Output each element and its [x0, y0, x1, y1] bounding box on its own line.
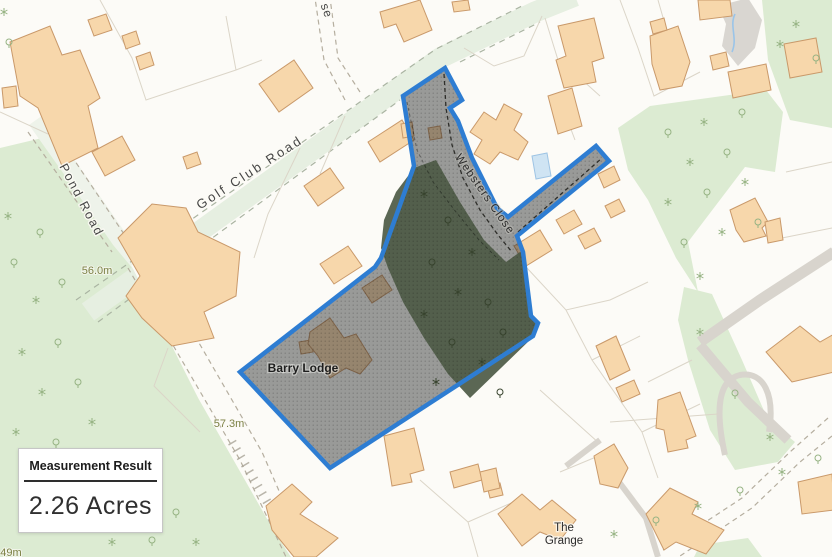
building: [784, 38, 822, 78]
place-label-the-grange: Grange: [545, 535, 583, 547]
place-label-barry-lodge: Barry Lodge: [268, 361, 339, 375]
spot-height-label: 57.3m: [214, 418, 245, 430]
map-measurement-screen: Golf Club Road Pond Road Websters Close …: [0, 0, 832, 557]
measurement-result-title: Measurement Result: [19, 449, 162, 473]
pond: [532, 153, 551, 179]
panel-divider: [24, 480, 157, 482]
measurement-result-panel: Measurement Result 2.26 Acres: [18, 448, 163, 533]
spot-height-label: 56.0m: [82, 265, 113, 277]
building: [765, 218, 783, 243]
building: [698, 0, 732, 20]
building: [452, 0, 470, 12]
place-label-the-grange: The: [554, 522, 574, 534]
building: [2, 86, 18, 108]
measurement-result-value: 2.26 Acres: [19, 492, 162, 521]
spot-height-label: 49m: [0, 547, 21, 557]
building: [480, 468, 500, 492]
